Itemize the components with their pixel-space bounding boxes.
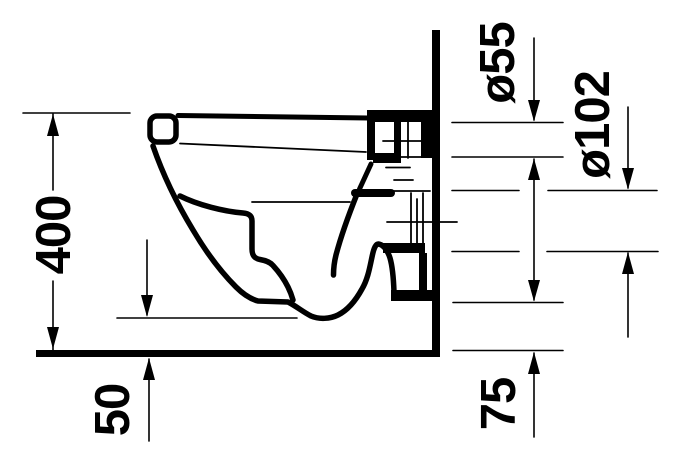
flush-connector-top-band <box>367 110 432 122</box>
dim-label-outlet-to-floor: 75 <box>472 378 526 431</box>
dim-label-flush-pipe-diameter: ø55 <box>471 22 525 103</box>
flush-pipe-wall-block <box>421 121 433 158</box>
flush-connector-left-edge <box>367 110 375 160</box>
dim-label-overall-height: 400 <box>27 196 81 275</box>
wall-section-line <box>432 30 440 357</box>
outlet-bar-upper <box>383 243 425 253</box>
flush-connector-divider <box>394 122 401 158</box>
ceramic-bottom-bar <box>391 290 433 301</box>
dim-label-outlet-pipe-diameter: ø102 <box>566 71 620 179</box>
toilet-elevation-diagram: 400 50 ø55 ø102 75 <box>0 0 676 460</box>
floor-line <box>36 350 440 357</box>
dim-label-bottom-clearance: 50 <box>86 384 140 437</box>
rim-top-edge <box>178 116 368 119</box>
technical-drawing-sheet: 400 50 ø55 ø102 75 <box>0 0 676 460</box>
